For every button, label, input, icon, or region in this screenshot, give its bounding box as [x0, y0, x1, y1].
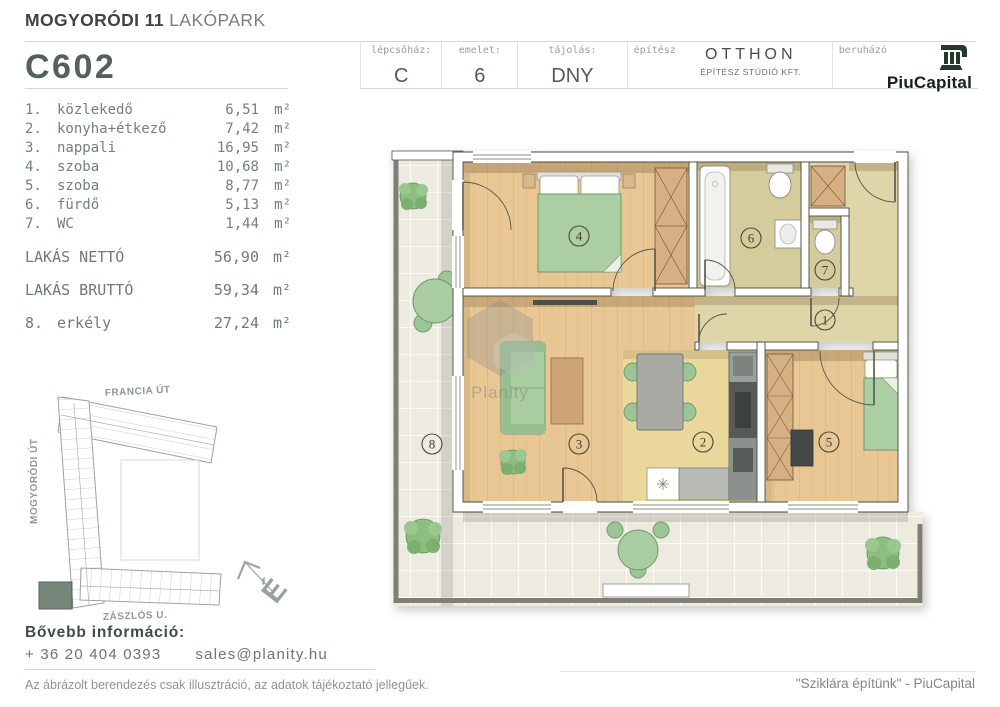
street-label-mogyorodi: MOGYORÓDI ÚT — [27, 439, 40, 524]
room-list: 1.közlekedő6,51m² 2.konyha+étkező7,42m² … — [25, 101, 291, 333]
balcony-name: erkély — [57, 314, 214, 333]
hall-furniture — [811, 166, 845, 206]
room-number-4: 4 — [576, 229, 583, 244]
cell-developer: beruházó PiuCapital — [832, 42, 978, 88]
toilet-bowl — [769, 172, 791, 198]
balcony-num: 8. — [25, 314, 57, 333]
room-row: 5.szoba8,77m² — [25, 177, 291, 196]
floor-label: emelet: — [459, 45, 501, 56]
room-unit: m² — [259, 196, 291, 215]
pillow — [865, 360, 897, 378]
room-number-3: 3 — [576, 437, 583, 452]
cell-staircase: lépcsőház: C — [360, 42, 441, 88]
company-slogan: "Sziklára építünk" - PiuCapital — [796, 676, 975, 691]
gross-label: LAKÁS BRUTTÓ — [25, 281, 214, 300]
orientation-label: tájolás: — [548, 45, 596, 56]
dining-table — [637, 354, 683, 430]
room-number-7: 7 — [822, 263, 829, 278]
net-area-row: LAKÁS NETTÓ56,90m² — [25, 248, 291, 267]
phone-number[interactable]: + 36 20 404 0393 — [25, 646, 161, 663]
room-num: 6. — [25, 196, 57, 215]
room-number-2: 2 — [700, 435, 707, 450]
staircase-label: lépcsőház: — [371, 45, 431, 56]
pillow — [581, 176, 619, 196]
bedroom4-furniture — [523, 168, 687, 284]
nightstand — [623, 174, 635, 188]
room-number-5: 5 — [826, 435, 833, 450]
architect-label: építész — [634, 45, 676, 56]
north-compass: É — [238, 562, 294, 609]
tv-stand — [791, 430, 813, 466]
header-info-cells: lépcsőház: C emelet: 6 tájolás: DNY épít… — [360, 42, 978, 89]
room-area: 7,42 — [225, 120, 259, 139]
room-area: 6,51 — [225, 101, 259, 120]
window — [788, 501, 858, 513]
architect-name: OTTHON — [705, 46, 797, 64]
window — [633, 501, 729, 513]
toilet-tank — [813, 220, 837, 229]
orientation-value: DNY — [551, 66, 593, 86]
room-area: 8,77 — [225, 177, 259, 196]
floor-plan: 1 2 3 4 5 6 7 8 Planity — [383, 138, 935, 622]
net-label: LAKÁS NETTÓ — [25, 248, 214, 267]
room-row: 2.konyha+étkező7,42m² — [25, 120, 291, 139]
developer-label: beruházó — [839, 45, 887, 56]
project-title: MOGYORÓDI 11 LAKÓPARK — [25, 10, 266, 31]
room-name: szoba — [57, 177, 225, 196]
architect-subtitle: ÉPÍTÉSZ STÚDIÓ KFT. — [700, 67, 801, 77]
room-number-6: 6 — [748, 231, 755, 246]
project-title-bold: MOGYORÓDI 11 — [25, 10, 164, 30]
staircase-value: C — [394, 66, 408, 86]
balcony-plant — [404, 519, 442, 554]
building-outline — [58, 397, 221, 608]
room-num: 5. — [25, 177, 57, 196]
nightstand — [523, 174, 535, 188]
room-row: 1.közlekedő6,51m² — [25, 101, 291, 120]
email-address[interactable]: sales@planity.hu — [195, 646, 328, 663]
gross-area-row: LAKÁS BRUTTÓ59,34m² — [25, 281, 291, 300]
room-row: 7.WC1,44m² — [25, 215, 291, 234]
bed-headboard — [863, 352, 899, 360]
developer-logo: PiuCapital — [887, 41, 972, 93]
room-number-1: 1 — [822, 313, 829, 328]
room-name: nappali — [57, 139, 217, 158]
room-area: 10,68 — [217, 158, 259, 177]
room-unit: m² — [259, 120, 291, 139]
net-area: 56,90 — [214, 248, 259, 267]
room-name: WC — [57, 215, 225, 234]
balcony-parapet — [392, 151, 463, 160]
cell-architect: építész OTTHON ÉPÍTÉSZ STÚDIÓ KFT. — [627, 42, 832, 88]
room-number-8: 8 — [429, 437, 436, 452]
net-unit: m² — [259, 248, 291, 267]
street-label-zaszlos: ZÁSZLÓS U. — [103, 608, 168, 623]
footer-divider-right — [560, 671, 975, 672]
window — [452, 236, 464, 288]
site-map: FRANCIA ÚT MOGYORÓDI ÚT ZÁSZLÓS U. É — [25, 372, 295, 624]
watermark-text: Planity — [471, 383, 529, 402]
room-row: 6.fürdő5,13m² — [25, 196, 291, 215]
architect-block: OTTHON ÉPÍTÉSZ STÚDIÓ KFT. — [676, 46, 826, 77]
indoor-plant — [499, 449, 527, 475]
pillow — [540, 176, 578, 196]
footer-divider-left — [25, 669, 375, 670]
room-name: közlekedő — [57, 101, 225, 120]
balcony-plant — [399, 183, 428, 210]
balcony-area: 27,24 — [214, 314, 259, 333]
room-unit: m² — [259, 158, 291, 177]
room-name: fürdő — [57, 196, 225, 215]
room-area: 16,95 — [217, 139, 259, 158]
window — [483, 501, 551, 513]
coffee-table — [551, 358, 583, 424]
room-unit: m² — [259, 177, 291, 196]
toilet-bowl — [815, 230, 835, 254]
room-num: 2. — [25, 120, 57, 139]
tv-unit — [533, 300, 597, 305]
room-name: szoba — [57, 158, 217, 177]
balcony-unit: m² — [259, 314, 291, 333]
room-num: 3. — [25, 139, 57, 158]
room-unit: m² — [259, 101, 291, 120]
developer-name: PiuCapital — [887, 73, 972, 93]
room-row: 3.nappali16,95m² — [25, 139, 291, 158]
floorplan-sheet: MOGYORÓDI 11 LAKÓPARK C602 lépcsőház: C … — [0, 0, 1000, 707]
room-row: 4.szoba10,68m² — [25, 158, 291, 177]
more-info-heading: Bővebb információ: — [25, 624, 185, 642]
room-name: konyha+étkező — [57, 120, 225, 139]
gross-area: 59,34 — [214, 281, 259, 300]
room-area: 5,13 — [225, 196, 259, 215]
kitchen-counter — [679, 468, 729, 500]
cell-orientation: tájolás: DNY — [517, 42, 627, 88]
room-unit: m² — [259, 139, 291, 158]
gross-unit: m² — [259, 281, 291, 300]
window — [473, 151, 531, 163]
room-num: 4. — [25, 158, 57, 177]
cell-floor: emelet: 6 — [441, 42, 517, 88]
project-title-light: LAKÓPARK — [169, 10, 265, 30]
highlighted-unit-marker — [39, 582, 72, 609]
kitchen-appliance-column — [729, 352, 757, 500]
room-area: 1,44 — [225, 215, 259, 234]
balcony-planter — [603, 584, 689, 597]
planity-watermark: Planity — [467, 300, 534, 402]
piucapital-column-icon — [934, 41, 972, 73]
street-label-francia: FRANCIA ÚT — [104, 383, 170, 399]
room-num: 7. — [25, 215, 57, 234]
unit-code-underline — [25, 88, 288, 89]
room-num: 1. — [25, 101, 57, 120]
room-unit: m² — [259, 215, 291, 234]
wc-furniture — [813, 220, 837, 254]
balcony-row: 8.erkély27,24m² — [25, 314, 291, 333]
contact-line: + 36 20 404 0393sales@planity.hu — [25, 646, 328, 663]
unit-code: C602 — [25, 48, 116, 87]
floor-value: 6 — [474, 66, 485, 86]
window — [452, 376, 464, 470]
disclaimer-text: Az ábrázolt berendezés csak illusztráció… — [25, 678, 429, 692]
balcony-plant — [865, 537, 901, 570]
